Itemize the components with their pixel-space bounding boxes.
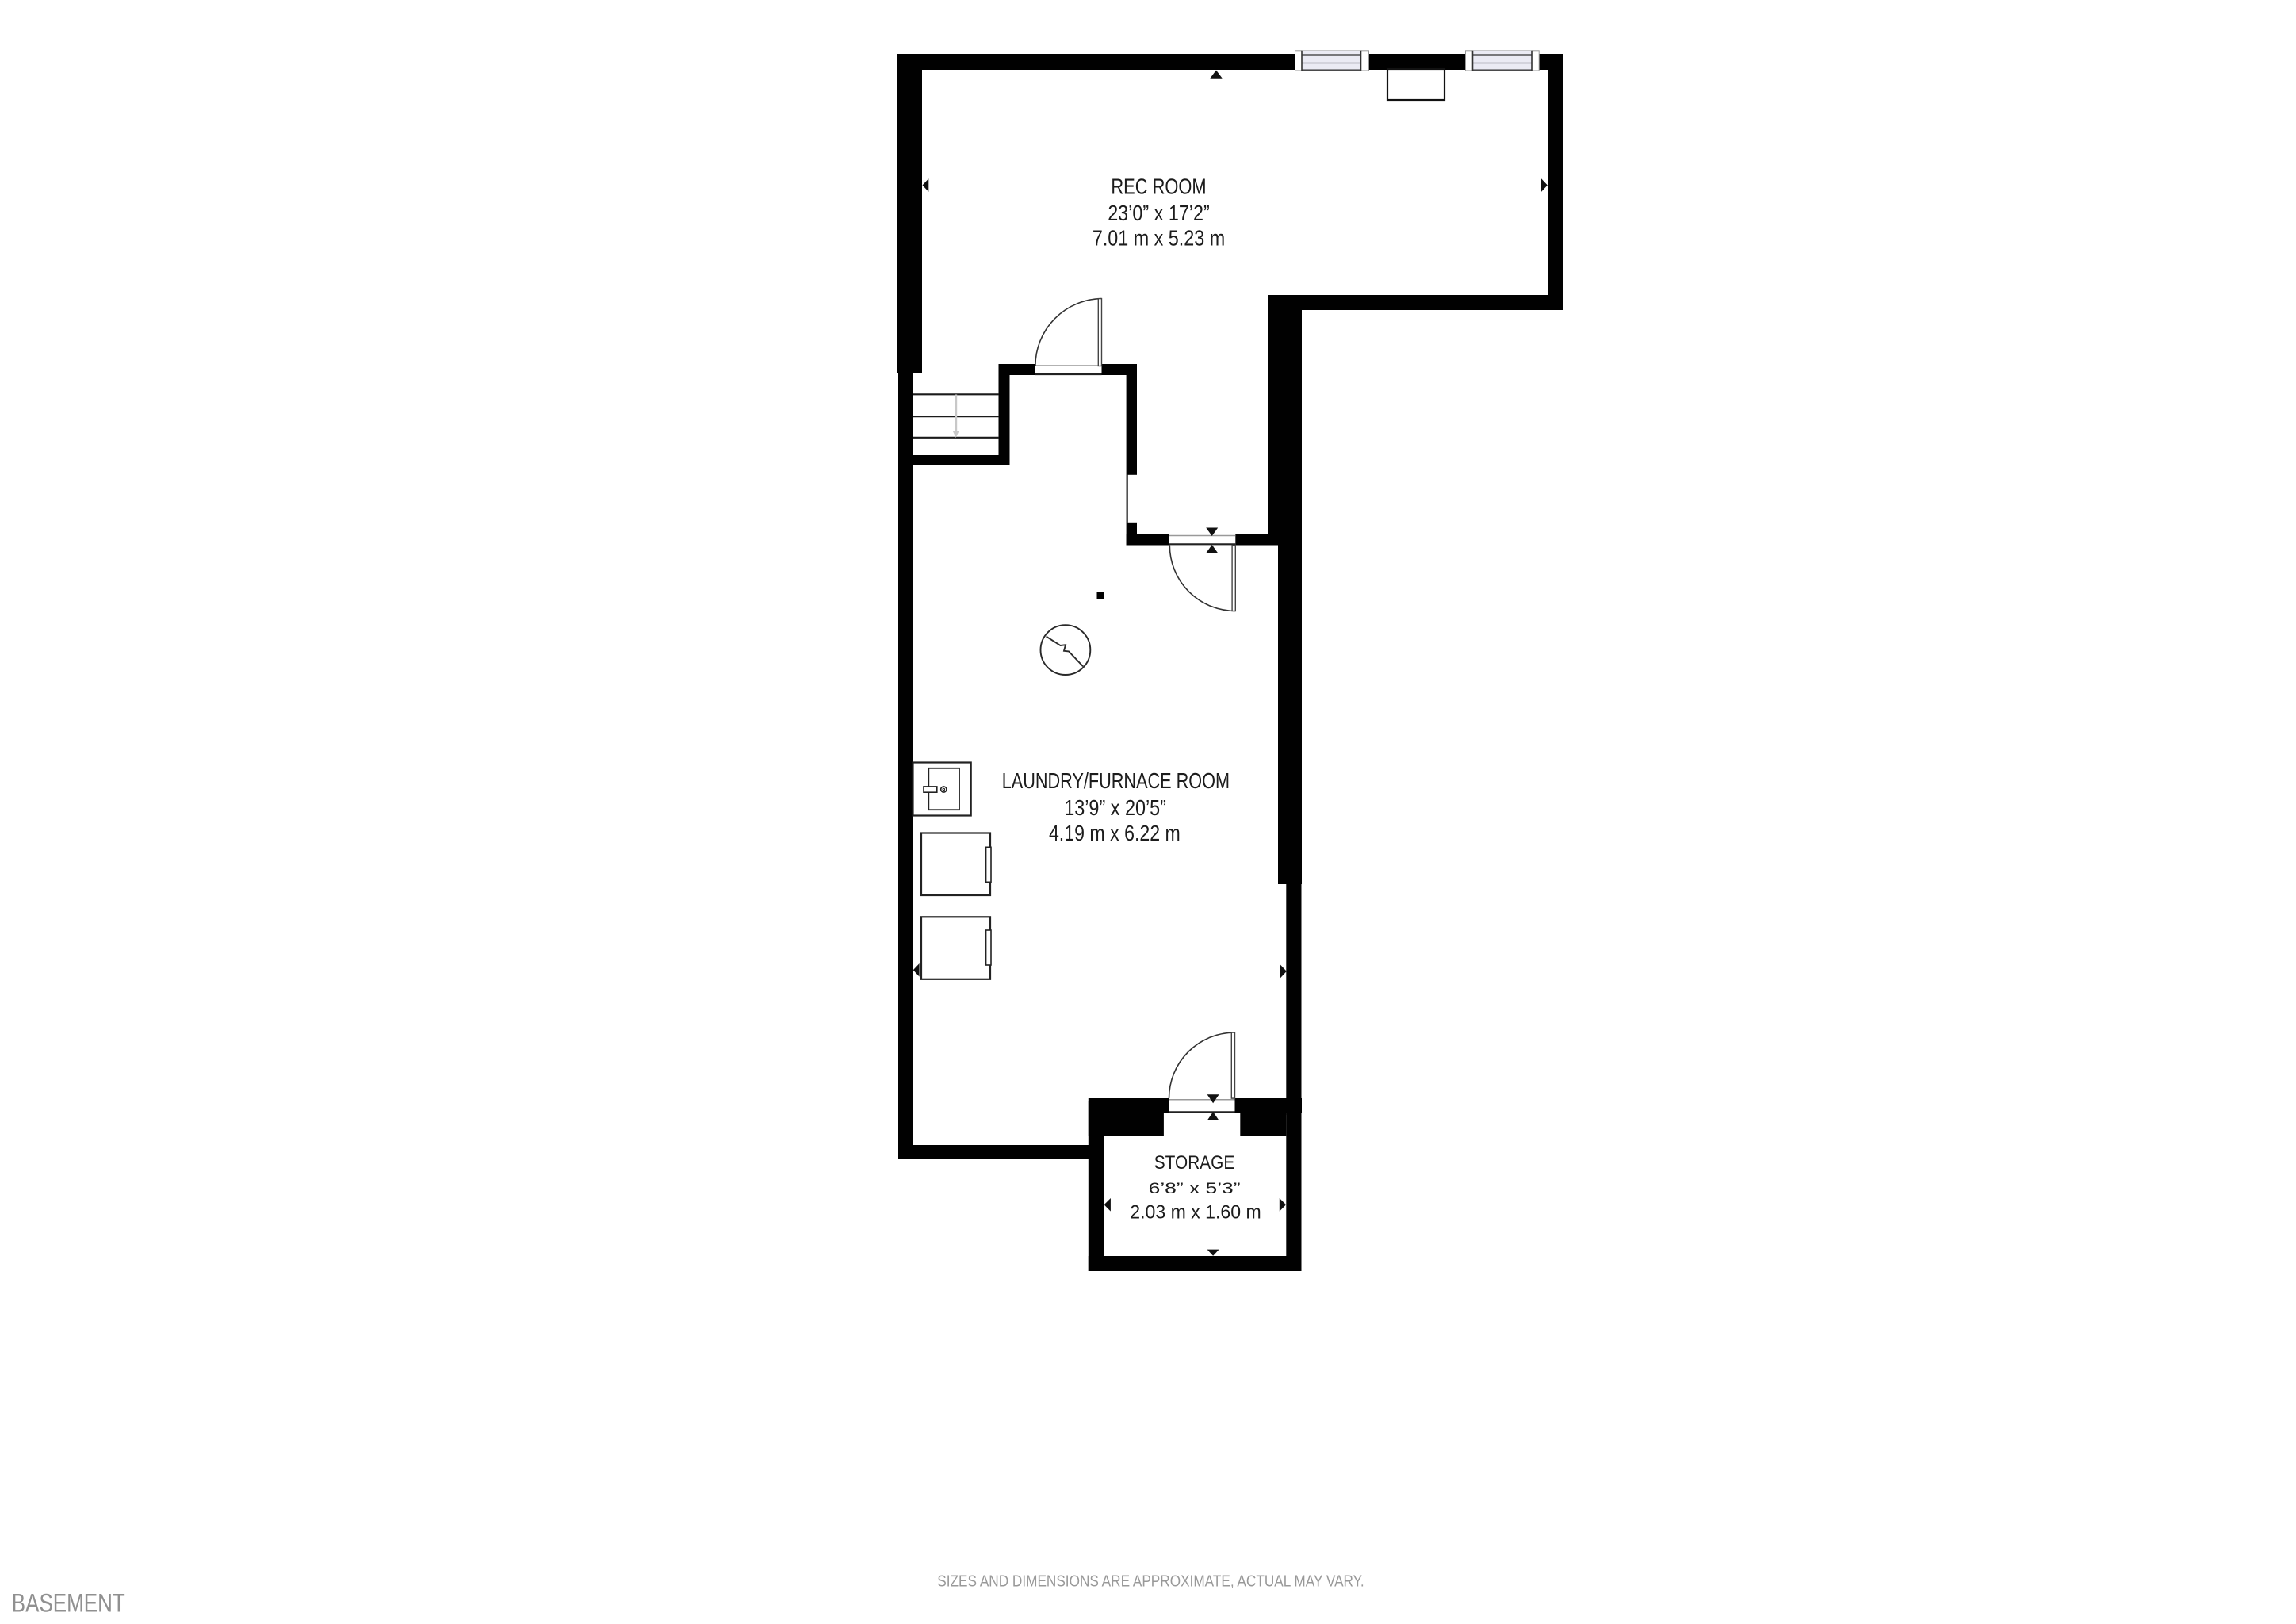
svg-text:REC ROOM: REC ROOM bbox=[1111, 174, 1206, 199]
svg-text:SIZES AND DIMENSIONS ARE APPRO: SIZES AND DIMENSIONS ARE APPROXIMATE, AC… bbox=[937, 1573, 1364, 1591]
svg-text:STORAGE: STORAGE bbox=[1154, 1152, 1235, 1174]
svg-text:7.01 m x 5.23 m: 7.01 m x 5.23 m bbox=[1093, 225, 1225, 250]
svg-text:LAUNDRY/FURNACE ROOM: LAUNDRY/FURNACE ROOM bbox=[1002, 768, 1230, 793]
svg-text:2.03 m x 1.60 m: 2.03 m x 1.60 m bbox=[1130, 1201, 1261, 1223]
svg-text:23’0” x 17’2”: 23’0” x 17’2” bbox=[1108, 201, 1210, 225]
svg-text:4.19 m x 6.22 m: 4.19 m x 6.22 m bbox=[1049, 821, 1181, 845]
svg-text:13’9” x 20’5”: 13’9” x 20’5” bbox=[1064, 795, 1166, 820]
svg-text:BASEMENT: BASEMENT bbox=[12, 1588, 125, 1617]
svg-text:6’8” x 5’3”: 6’8” x 5’3” bbox=[1149, 1180, 1241, 1197]
